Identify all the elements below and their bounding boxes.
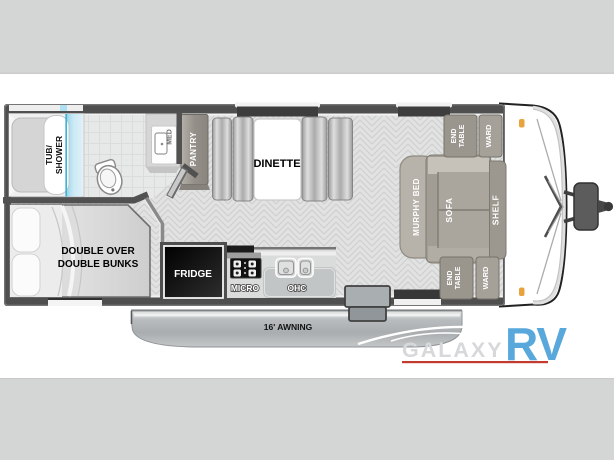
svg-text:PANTRY: PANTRY	[189, 132, 198, 167]
svg-text:MED: MED	[167, 129, 174, 145]
svg-text:TABLE: TABLE	[455, 266, 462, 289]
svg-text:DOUBLE OVER: DOUBLE OVER	[61, 246, 135, 257]
svg-text:FRIDGE: FRIDGE	[174, 269, 212, 280]
svg-text:OHC: OHC	[288, 283, 307, 293]
svg-text:WARD: WARD	[481, 266, 490, 289]
svg-text:SOFA: SOFA	[444, 197, 454, 222]
svg-text:DOUBLE BUNKS: DOUBLE BUNKS	[58, 259, 139, 270]
svg-text:WARD: WARD	[484, 124, 493, 147]
svg-text:SHOWER: SHOWER	[54, 136, 64, 174]
svg-text:MICRO: MICRO	[231, 283, 260, 293]
svg-text:TABLE: TABLE	[459, 124, 466, 147]
svg-text:END: END	[447, 271, 454, 286]
svg-text:DINETTE: DINETTE	[253, 158, 300, 170]
svg-text:MURPHY BED: MURPHY BED	[412, 178, 421, 236]
svg-text:TUB/: TUB/	[44, 144, 54, 164]
svg-text:16' AWNING: 16' AWNING	[264, 322, 313, 332]
svg-text:SHELF: SHELF	[491, 195, 501, 225]
svg-text:GALAXY: GALAXY	[402, 338, 504, 362]
svg-text:END: END	[451, 129, 458, 144]
